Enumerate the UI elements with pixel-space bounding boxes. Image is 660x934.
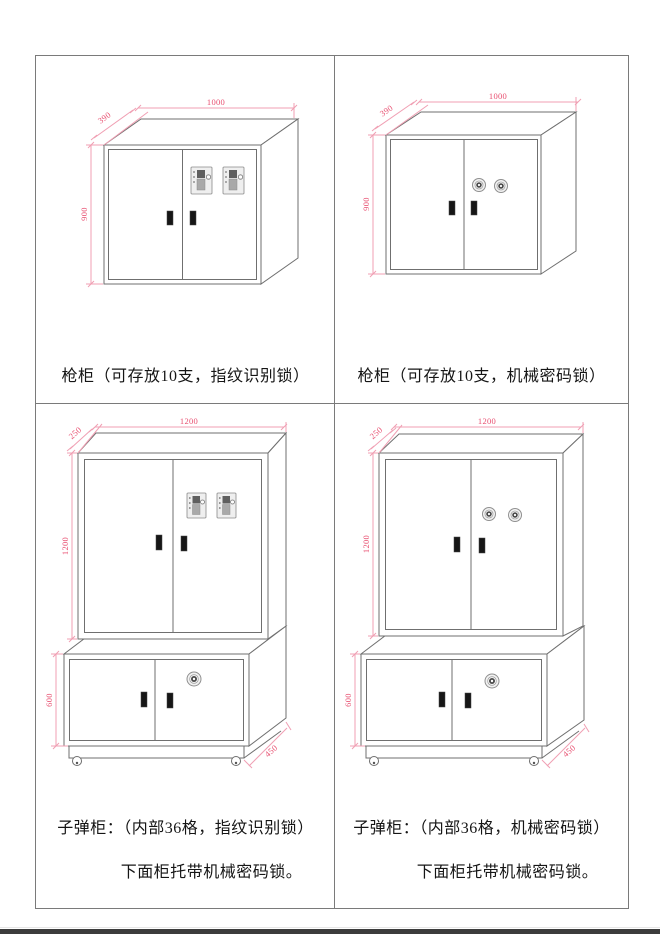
dimension-height: 900 [79, 142, 103, 287]
dim-label-height: 1200 [60, 537, 70, 555]
caption-line1: 子弹柜：（内部36格，指纹识别锁） [36, 814, 335, 838]
dim-label-width: 1000 [489, 91, 507, 101]
dim-label-base-height: 600 [343, 693, 353, 707]
base-cabinet-body [361, 626, 584, 758]
caption: 枪柜（可存放10支，机械密码锁） [335, 362, 628, 386]
dim-label-depth: 390 [378, 103, 395, 119]
caster-wheel-icon [530, 757, 539, 766]
dimension-height: 1200 [361, 450, 378, 639]
dial-lock-icon [483, 508, 496, 521]
fingerprint-lock-icon [217, 493, 236, 518]
dim-label-base-height: 600 [44, 693, 54, 707]
caption-line2: 下面柜托带机械密码锁。 [62, 858, 335, 882]
dim-label-base-depth: 450 [263, 742, 280, 759]
dial-lock-icon [495, 180, 508, 193]
panel-ammo-cabinet-mechanical: 1200 250 1200 [335, 404, 628, 908]
gun-cabinet-fingerprint-drawing: 1000 390 900 [36, 56, 335, 403]
page-bottom-bar [0, 929, 660, 934]
dimension-height: 1200 [60, 450, 77, 642]
caster-wheel-icon [73, 757, 82, 766]
drawing-sheet-border: 1000 390 900 枪柜（可存放10支，指纹识别锁） [35, 55, 629, 909]
dial-lock-icon [509, 509, 522, 522]
dial-lock-icon [187, 672, 201, 686]
dim-label-width: 1200 [478, 416, 496, 426]
base-cabinet-body [64, 626, 286, 758]
upper-cabinet-body [379, 434, 583, 636]
caster-wheel-icon [370, 757, 379, 766]
dial-lock-icon [485, 674, 499, 688]
cabinet-body [104, 119, 298, 284]
dim-label-base-depth: 450 [561, 742, 578, 759]
dim-label-depth: 390 [96, 110, 113, 126]
caption-line1: 子弹柜：（内部36格，机械密码锁） [335, 814, 628, 838]
gun-cabinet-mechanical-drawing: 1000 390 900 [335, 56, 628, 403]
panel-ammo-cabinet-fingerprint: 1200 250 1200 [36, 404, 335, 908]
dim-label-height: 900 [361, 197, 371, 211]
fingerprint-lock-icon [191, 167, 212, 194]
cabinet-body [386, 112, 576, 274]
caster-wheel-icon [232, 757, 241, 766]
dial-lock-icon [473, 179, 486, 192]
dim-label-width: 1000 [207, 97, 225, 107]
fingerprint-lock-icon [223, 167, 244, 194]
panel-gun-cabinet-mechanical: 1000 390 900 枪柜（可存放10支，机械密码锁） [335, 56, 628, 403]
dimension-height: 900 [361, 132, 385, 277]
dim-label-depth: 250 [368, 424, 385, 441]
caption-line2: 下面柜托带机械密码锁。 [361, 858, 628, 882]
dim-label-height: 900 [79, 207, 89, 221]
caption: 枪柜（可存放10支，指纹识别锁） [36, 362, 335, 386]
fingerprint-lock-icon [187, 493, 206, 518]
spec-sheet-page: 1000 390 900 枪柜（可存放10支，指纹识别锁） [0, 0, 660, 934]
page-bottom-hairline [0, 927, 660, 928]
panel-gun-cabinet-fingerprint: 1000 390 900 枪柜（可存放10支，指纹识别锁） [36, 56, 335, 403]
dim-label-height: 1200 [361, 535, 371, 553]
dim-label-width: 1200 [180, 416, 198, 426]
